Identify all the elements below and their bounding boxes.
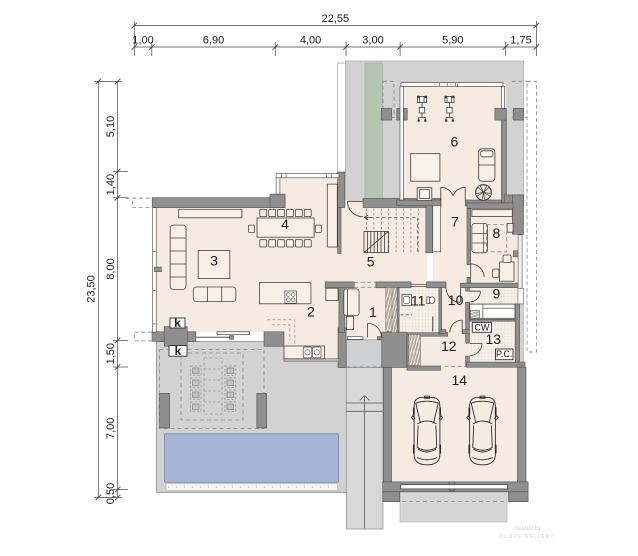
svg-text:1: 1 xyxy=(369,304,377,320)
svg-text:2: 2 xyxy=(307,304,315,320)
svg-text:0,50: 0,50 xyxy=(105,483,117,504)
svg-text:8,00: 8,00 xyxy=(105,258,117,279)
svg-text:13: 13 xyxy=(486,331,502,347)
svg-text:12: 12 xyxy=(441,338,457,354)
svg-text:8: 8 xyxy=(493,225,501,241)
svg-text:7: 7 xyxy=(451,214,459,230)
svg-text:DOBRE GALLERY: DOBRE GALLERY xyxy=(499,534,554,540)
svg-text:3,00: 3,00 xyxy=(362,35,383,47)
svg-text:23,50: 23,50 xyxy=(86,275,98,303)
svg-text:5: 5 xyxy=(367,254,375,270)
svg-text:1,40: 1,40 xyxy=(105,174,117,195)
svg-text:k: k xyxy=(174,316,181,330)
svg-text:P.C.: P.C. xyxy=(496,349,512,359)
svg-text:7,00: 7,00 xyxy=(105,418,117,439)
svg-text:3: 3 xyxy=(210,253,218,269)
svg-text:k: k xyxy=(175,344,182,358)
svg-text:9: 9 xyxy=(493,286,501,302)
svg-text:11: 11 xyxy=(411,292,426,308)
svg-text:1,00: 1,00 xyxy=(132,35,153,47)
svg-text:6: 6 xyxy=(451,133,459,149)
svg-text:1,50: 1,50 xyxy=(105,343,117,364)
svg-text:4,00: 4,00 xyxy=(300,35,321,47)
svg-text:6,90: 6,90 xyxy=(203,35,224,47)
svg-text:10: 10 xyxy=(448,292,464,308)
svg-text:22,55: 22,55 xyxy=(322,13,350,25)
svg-text:CW: CW xyxy=(474,322,489,332)
svg-text:4: 4 xyxy=(281,216,289,232)
svg-text:5,90: 5,90 xyxy=(442,35,463,47)
svg-text:5,10: 5,10 xyxy=(105,116,117,137)
svg-text:14: 14 xyxy=(452,372,468,388)
svg-text:1,75: 1,75 xyxy=(510,35,531,47)
svg-text:created by: created by xyxy=(513,526,542,532)
